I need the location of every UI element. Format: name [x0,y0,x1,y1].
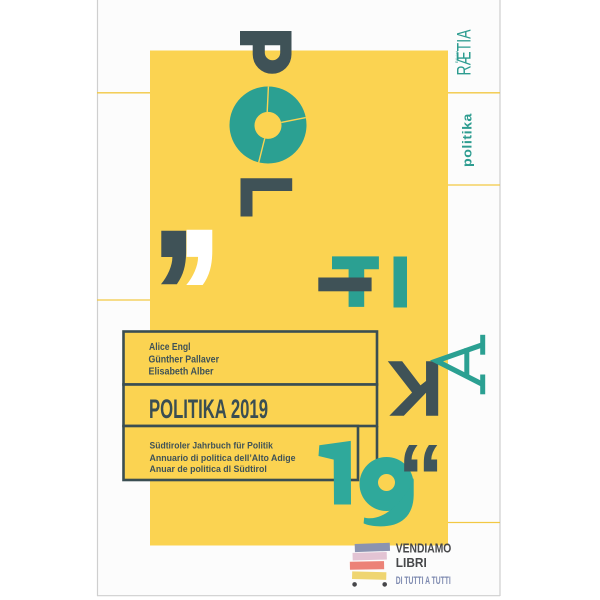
svg-text:POLITIKA 2019: POLITIKA 2019 [149,394,268,424]
svg-text:“: “ [397,425,444,530]
svg-text:LIBRI: LIBRI [396,555,427,570]
svg-text:Günther Pallaver: Günther Pallaver [149,354,220,365]
svg-text:Südtiroler Jahrbuch für Politi: Südtiroler Jahrbuch für Politik [150,441,274,452]
svg-text:Elisabeth Alber: Elisabeth Alber [149,367,214,378]
svg-text:Edizioni: Edizioni [455,51,459,63]
svg-text:VENDIAMO: VENDIAMO [396,541,452,556]
svg-text:Anuar de politica dl Südtirol: Anuar de politica dl Südtirol [150,464,267,475]
svg-text:,: , [174,92,225,296]
svg-text:DI TUTTI A TUTTI: DI TUTTI A TUTTI [396,575,451,587]
svg-text:Annuario di politica dell’Alto: Annuario di politica dell’Alto Adige [150,453,296,464]
svg-text:politika: politika [460,113,475,167]
svg-text:K: K [389,345,443,431]
svg-text:Alice Engl: Alice Engl [149,342,191,353]
